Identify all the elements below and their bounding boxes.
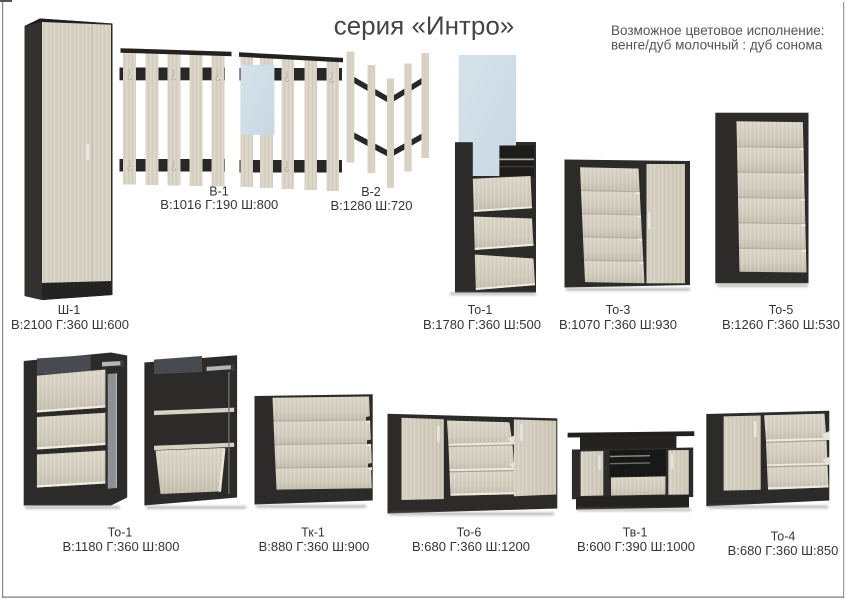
- svg-text:В:1280 Ш:720: В:1280 Ш:720: [330, 198, 412, 213]
- svg-text:В:1260 Г:360 Ш:530: В:1260 Г:360 Ш:530: [722, 317, 840, 332]
- svg-text:В:1016 Г:190 Ш:800: В:1016 Г:190 Ш:800: [160, 197, 278, 212]
- svg-text:Тк-1: Тк-1: [301, 526, 325, 540]
- svg-text:В-2: В-2: [361, 185, 381, 199]
- svg-text:В:1780 Г:360 Ш:500: В:1780 Г:360 Ш:500: [423, 317, 541, 332]
- svg-text:То-4: То-4: [771, 530, 796, 544]
- svg-text:В:1180 Г:360 Ш:800: В:1180 Г:360 Ш:800: [62, 539, 179, 554]
- svg-text:Тв-1: Тв-1: [623, 526, 648, 540]
- svg-text:То-6: То-6: [457, 526, 482, 540]
- svg-text:То-1: То-1: [108, 526, 133, 540]
- svg-text:В:600 Г:390 Ш:1000: В:600 Г:390 Ш:1000: [577, 539, 695, 554]
- svg-text:То-3: То-3: [606, 303, 631, 317]
- svg-text:серия «Интро»: серия «Интро»: [334, 11, 515, 41]
- svg-text:Ш-1: Ш-1: [58, 303, 81, 317]
- svg-text:венге/дуб молочный : дуб соно: венге/дуб молочный : дуб сонома: [611, 38, 823, 53]
- svg-text:В:680 Г:360 Ш:850: В:680 Г:360 Ш:850: [728, 543, 839, 558]
- svg-text:Возможное цветовое исполнение:: Возможное цветовое исполнение:: [611, 23, 825, 38]
- svg-text:В:680 Г:360 Ш:1200: В:680 Г:360 Ш:1200: [412, 539, 530, 554]
- svg-text:То-1: То-1: [468, 303, 493, 317]
- svg-text:В:880 Г:360 Ш:900: В:880 Г:360 Ш:900: [259, 539, 370, 554]
- svg-text:То-5: То-5: [769, 303, 794, 317]
- svg-text:В:2100 Г:360 Ш:600: В:2100 Г:360 Ш:600: [11, 317, 129, 332]
- svg-text:В:1070 Г:360 Ш:930: В:1070 Г:360 Ш:930: [559, 317, 677, 332]
